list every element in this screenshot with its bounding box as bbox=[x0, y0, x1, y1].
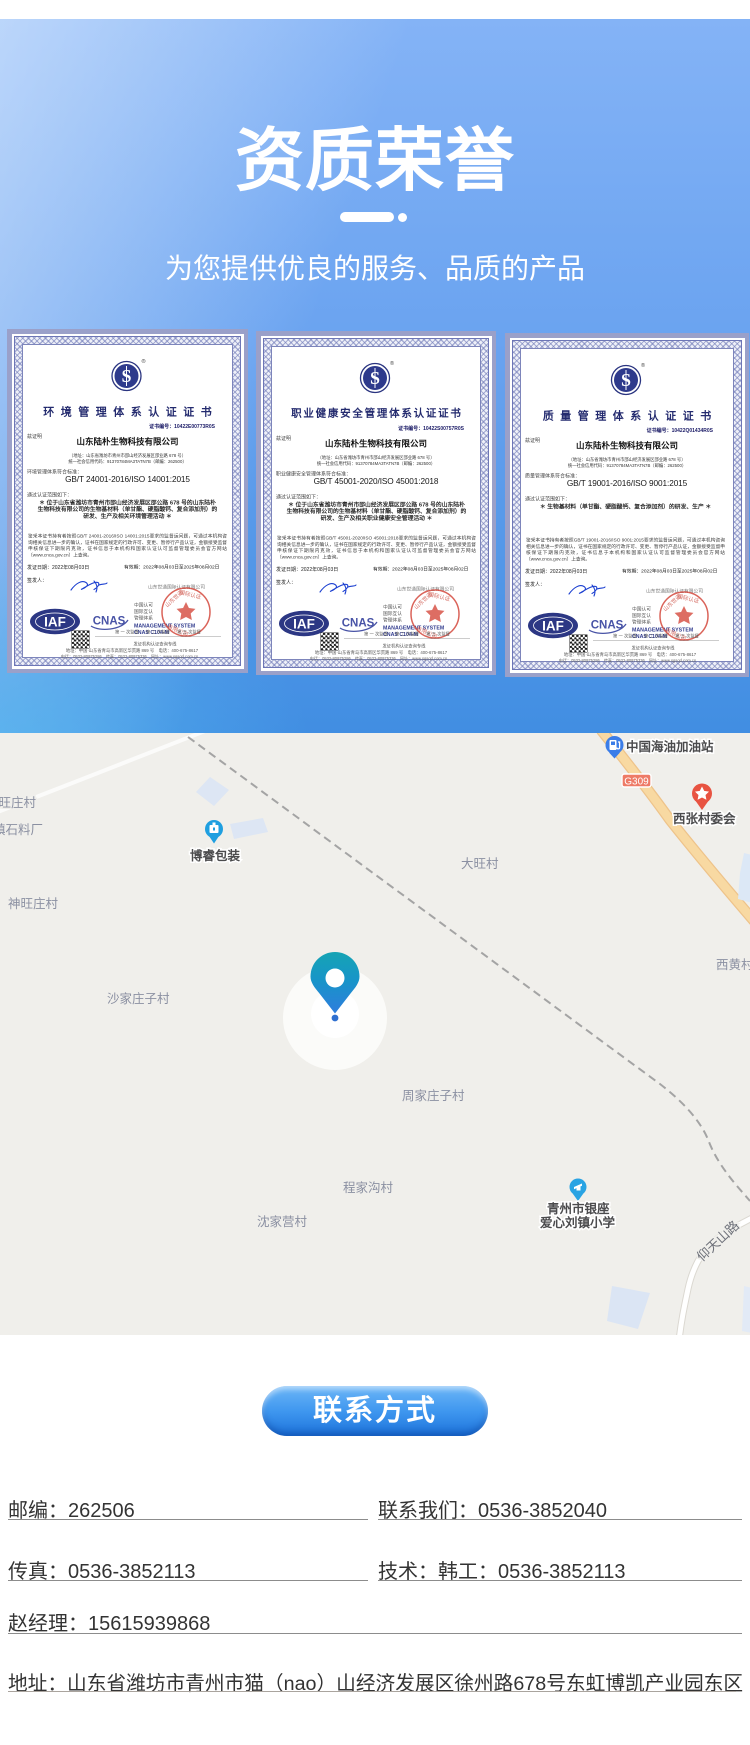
svg-text:爱心刘镇小学: 爱心刘镇小学 bbox=[540, 1215, 616, 1230]
svg-text:®: ® bbox=[641, 362, 645, 369]
svg-text:镇石料厂: 镇石料厂 bbox=[0, 823, 43, 837]
svg-text:IAF: IAF bbox=[44, 615, 66, 630]
svg-text:博睿包装: 博睿包装 bbox=[190, 848, 241, 863]
svg-text:®: ® bbox=[141, 358, 145, 365]
svg-text:沈家营村: 沈家营村 bbox=[257, 1214, 308, 1229]
svg-text:西张村委会: 西张村委会 bbox=[673, 811, 736, 826]
svg-text:CNAS: CNAS bbox=[342, 618, 375, 630]
svg-text:G309: G309 bbox=[624, 777, 649, 788]
svg-text:青州市银座: 青州市银座 bbox=[547, 1201, 610, 1216]
svg-text:国际认证: 国际认证 bbox=[179, 588, 203, 601]
svg-text:国际认证: 国际认证 bbox=[677, 592, 701, 605]
svg-text:神旺庄村: 神旺庄村 bbox=[8, 896, 59, 911]
svg-text:沙家庄子村: 沙家庄子村 bbox=[107, 991, 170, 1006]
svg-text:程家沟村: 程家沟村 bbox=[343, 1180, 394, 1195]
svg-text:中国海油加油站: 中国海油加油站 bbox=[626, 739, 714, 754]
svg-text:西黄村: 西黄村 bbox=[716, 958, 750, 972]
svg-text:国际认证: 国际认证 bbox=[428, 590, 452, 603]
svg-text:周家庄子村: 周家庄子村 bbox=[402, 1088, 465, 1103]
svg-text:大旺村: 大旺村 bbox=[461, 857, 499, 871]
svg-text:®: ® bbox=[390, 360, 394, 367]
svg-text:CNAS: CNAS bbox=[93, 616, 126, 628]
svg-text:IAF: IAF bbox=[293, 617, 315, 632]
svg-text:泉旺庄村: 泉旺庄村 bbox=[0, 795, 37, 810]
svg-text:CNAS: CNAS bbox=[591, 620, 624, 632]
svg-text:仰天山路: 仰天山路 bbox=[694, 1218, 742, 1264]
svg-text:IAF: IAF bbox=[542, 619, 564, 634]
